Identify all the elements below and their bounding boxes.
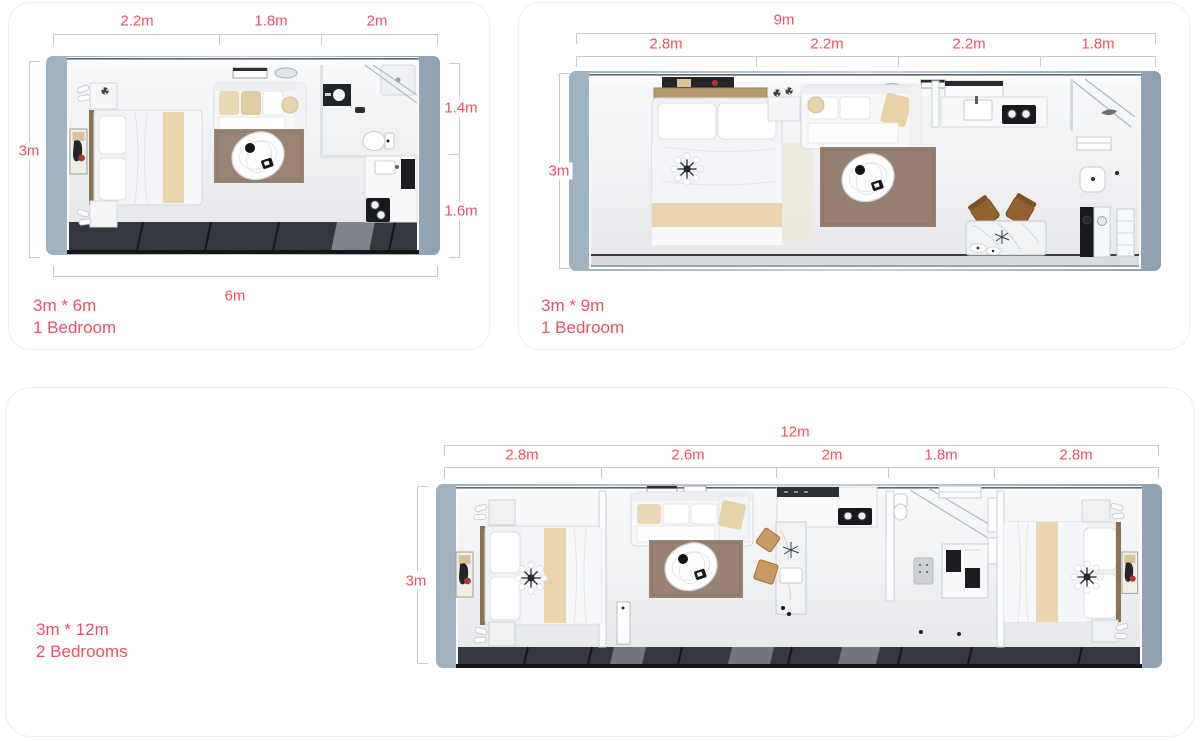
dim-top-label: 2.6m: [668, 447, 707, 464]
bathroom-sink: [323, 84, 351, 106]
dim-left-label: 3m: [546, 163, 573, 180]
kitchen-counter: [777, 487, 877, 527]
bottom-wall: [591, 256, 1139, 265]
floor-spot: [919, 630, 923, 634]
dim-line-bottom: [53, 276, 438, 277]
double-bed: [480, 526, 601, 625]
dim-tick: [898, 56, 899, 67]
dim-line-total: [576, 33, 1156, 34]
dim-line-left: [29, 61, 30, 258]
terrace-decking: [456, 647, 1142, 668]
dim-tick: [449, 154, 460, 155]
dim-tick: [219, 34, 220, 45]
partition-wall: [997, 491, 1004, 647]
dim-bottom-label: 6m: [222, 288, 249, 305]
dim-line-top: [53, 34, 438, 35]
card-plan-3x6: 2.2m 1.8m 2m 3m 1.4m 1.6m 6m 3m * 6m 1 B…: [8, 2, 490, 350]
dim-total-label: 9m: [771, 12, 798, 29]
wall-shelf: [1077, 137, 1111, 150]
interior-door: [617, 602, 630, 644]
plan-size-text: 3m * 12m: [36, 619, 128, 641]
dim-left-label: 3m: [403, 573, 430, 590]
ceiling-vent: [233, 68, 297, 78]
chandelier-icon: [1071, 561, 1103, 593]
dim-tick: [437, 266, 438, 277]
dim-tick: [756, 56, 757, 67]
vanity-shelf: [939, 486, 981, 498]
dim-tick: [437, 34, 438, 45]
dim-tick: [1158, 445, 1159, 456]
dim-tick: [994, 467, 995, 478]
partition-stub: [932, 81, 939, 127]
double-bed: [89, 110, 202, 205]
dim-left-label: 3m: [16, 143, 43, 160]
wall-cabinet: [988, 498, 997, 532]
dim-top-label: 1.8m: [251, 13, 290, 30]
plan-size-text: 3m * 9m: [541, 295, 624, 317]
dim-tick: [888, 467, 889, 478]
plan-bedrooms-text: 1 Bedroom: [33, 317, 116, 339]
dim-top-label: 2m: [819, 447, 846, 464]
dim-tick: [1158, 467, 1159, 478]
terrace-decking: [67, 222, 419, 254]
chandelier-icon: [515, 562, 547, 594]
dim-tick: [576, 56, 577, 67]
floorplan-3x9-illustration: [565, 69, 1165, 273]
toilet: [894, 494, 907, 520]
floor-spot: [957, 632, 961, 636]
dim-top-label: 2m: [364, 13, 391, 30]
plan-size-text: 3m * 6m: [33, 295, 116, 317]
washer-dryer: [942, 544, 988, 598]
partition-wall: [1070, 79, 1073, 131]
plan-caption: 3m * 12m 2 Bedrooms: [36, 619, 128, 663]
control-panel: [914, 558, 933, 584]
dim-top-label: 2.2m: [117, 13, 156, 30]
plan-bedrooms-text: 1 Bedroom: [541, 317, 624, 339]
dim-tick: [417, 486, 428, 487]
washer-dryer: [1080, 207, 1110, 257]
floorplan-brochure-page: { "accent_color": "#ec5063", "dim_line_c…: [0, 0, 1200, 741]
dim-line-top: [444, 467, 1159, 468]
plan-caption: 3m * 9m 1 Bedroom: [541, 295, 624, 339]
wall-art-icon: [70, 129, 87, 174]
dim-right-label: 1.6m: [441, 203, 480, 220]
dim-top-label: 2.8m: [1056, 447, 1095, 464]
dim-tick: [321, 34, 322, 45]
dim-top-label: 2.8m: [502, 447, 541, 464]
top-wall-edge: [589, 74, 1141, 76]
dim-line-total: [444, 445, 1159, 446]
dim-tick: [444, 467, 445, 478]
dim-line-right: [459, 63, 460, 258]
wall-cabinet: [988, 538, 997, 564]
sofa: [631, 492, 753, 546]
plan-bedrooms-text: 2 Bedrooms: [36, 641, 128, 663]
dim-tick: [559, 73, 570, 74]
dim-tick: [449, 63, 460, 64]
dim-tick: [29, 61, 40, 62]
dim-tick: [1155, 33, 1156, 44]
sofa: [214, 83, 306, 133]
dim-total-label: 12m: [777, 424, 812, 441]
dim-top-label: 1.8m: [921, 447, 960, 464]
card-plan-3x12: 12m 2.8m 2.6m 2m 1.8m 2.8m 3m 3m * 12m 2…: [5, 387, 1195, 737]
dim-line-top: [576, 56, 1156, 57]
dim-tick: [417, 663, 428, 664]
wall-art-icon: [456, 552, 473, 597]
card-plan-3x9: 9m 2.8m 2.2m 2.2m 1.8m 3m 3m * 9m 1 Bedr…: [518, 2, 1190, 350]
top-wall-edge: [67, 58, 419, 60]
plan-caption: 3m * 6m 1 Bedroom: [33, 295, 116, 339]
dim-tick: [444, 445, 445, 456]
dim-tick: [776, 467, 777, 478]
dim-top-label: 2.2m: [807, 36, 846, 53]
dim-tick: [1155, 56, 1156, 67]
dim-top-label: 2.8m: [646, 36, 685, 53]
double-bed: [1004, 522, 1121, 622]
kitchen-counter: [365, 156, 417, 222]
kitchen-counter: [941, 96, 1047, 127]
storage-shelf: [1117, 209, 1134, 256]
wall-art-icon: [1122, 552, 1138, 593]
partition-wall: [886, 491, 894, 601]
bottom-wall-edge: [591, 254, 1139, 256]
dim-tick: [53, 266, 54, 277]
toilet: [363, 132, 394, 151]
dim-top-label: 1.8m: [1078, 36, 1117, 53]
chandelier-icon: [671, 153, 703, 185]
dining-table: [966, 221, 1046, 255]
floorplan-3x6-illustration: [43, 53, 443, 258]
floorplan-3x12-illustration: [432, 480, 1166, 672]
dim-tick: [53, 34, 54, 45]
dim-right-label: 1.4m: [441, 100, 480, 117]
dim-tick: [1040, 56, 1041, 67]
dim-tick: [29, 257, 40, 258]
dim-tick: [601, 467, 602, 478]
dim-tick: [449, 257, 460, 258]
sofa: [801, 85, 921, 149]
dim-tick: [559, 268, 570, 269]
dim-top-label: 2.2m: [949, 36, 988, 53]
bottom-outer-edge: [591, 265, 1139, 267]
dim-tick: [576, 33, 577, 44]
